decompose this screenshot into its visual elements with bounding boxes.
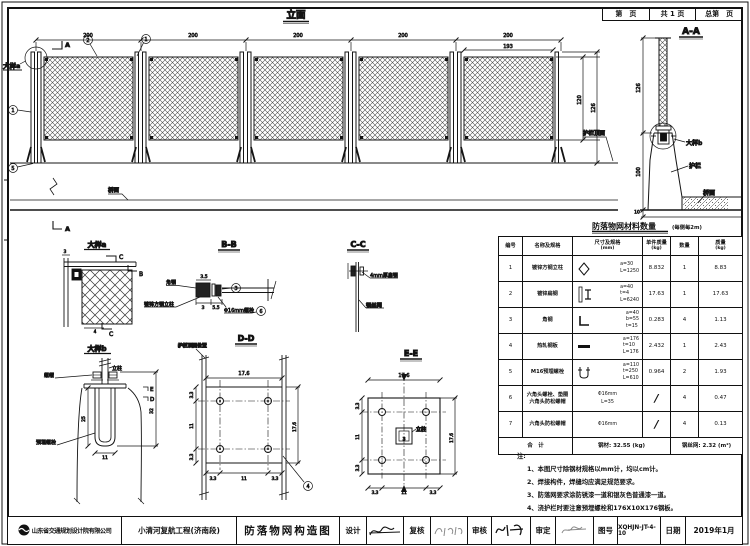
svg-text:螺帽: 螺帽: [44, 372, 54, 379]
svg-text:200: 200: [398, 33, 408, 39]
svg-text:126: 126: [591, 103, 597, 113]
note-item: 2、焊接构件，焊缝均应满足规范要求。: [527, 476, 744, 489]
page-number-cell: 第 页: [603, 8, 649, 20]
section-dd-view: D-D 护栏顶面位置 17.6 3.3 11 3.3: [178, 334, 313, 500]
table-row: 5 M16预埋螺栓 a=110t=250L=610 0.964 2 1.93: [499, 360, 743, 386]
svg-text:大样a: 大样a: [88, 240, 107, 249]
title-block: 山东省交通规划设计院有限公司 小清河复航工程(济南段) 防落物网构造图 设计 复…: [8, 516, 742, 544]
svg-text:100: 100: [636, 167, 642, 177]
note-item: 4、浇护栏时要注意预埋螺栓和176X10X176钢板。: [527, 502, 744, 515]
svg-text:3.3: 3.3: [372, 490, 379, 496]
section-ee-view: E-E 3 立柱 17.6 17.6 3.3: [355, 349, 458, 496]
elevation-right-dims: 120 126: [556, 50, 600, 166]
svg-text:11: 11: [401, 490, 407, 496]
rail-top-label: 护栏顶面: [583, 129, 613, 161]
svg-text:D: D: [150, 397, 154, 403]
col-unit-weight: 单件质量(kg): [643, 237, 671, 256]
callout-bubble-1b: 1: [9, 106, 32, 115]
svg-text:3.3: 3.3: [210, 476, 217, 482]
figure-number: XQHJN-JT-4-10: [618, 517, 661, 544]
size-sketch-icon: [576, 261, 592, 277]
page-header-strip: 第 页 共 1 页 总第 页: [602, 8, 742, 21]
deck-label: 桥面: [108, 186, 128, 200]
svg-text:17.6: 17.6: [449, 433, 455, 443]
detail-b-view: 大样b 25 11 32 E: [36, 344, 159, 504]
table-row: 2 镀锌扁钢 a=40t=4L=6240 17.63 1 17.63: [499, 282, 743, 308]
check-label: 复核: [404, 517, 431, 544]
svg-text:2: 2: [86, 38, 89, 44]
svg-text:防落物网材料数量: 防落物网材料数量: [592, 221, 656, 231]
svg-text:大样b: 大样b: [686, 139, 703, 147]
date-label: 日期: [661, 517, 686, 544]
section-bb-view: B-B 3.5 3 5.5 角钢 镀锌方钢立柱 Φ16mm螺栓 3 6: [144, 240, 276, 316]
svg-text:5.5: 5.5: [212, 305, 219, 311]
company-logo-icon: [18, 524, 30, 538]
svg-text:大样b: 大样b: [87, 344, 106, 353]
detail-a-ref-label: 大样a: [3, 61, 20, 70]
svg-text:11: 11: [189, 423, 195, 429]
material-table: 编号 名称及规格 尺寸及规格(mm) 单件质量(kg) 数量 质量(kg) 1 …: [498, 236, 743, 455]
svg-text:3.3: 3.3: [430, 490, 437, 496]
svg-text:桥面: 桥面: [703, 189, 715, 197]
svg-text:17.6: 17.6: [292, 422, 298, 432]
svg-text:3.3: 3.3: [355, 402, 361, 409]
callout-bubble-6: 6: [257, 307, 266, 316]
svg-text:17.6: 17.6: [398, 373, 409, 379]
detail-a-view: 大样a 3 4 C C B: [62, 240, 143, 338]
callout-bubble-4: 4: [304, 482, 313, 491]
col-no: 编号: [499, 237, 523, 256]
table-row: 6 六角头螺栓、垫圈六角头防松螺帽 Φ16mmL=35 / 4 0.47: [499, 386, 743, 412]
svg-text:3: 3: [64, 249, 67, 255]
svg-text:200: 200: [503, 33, 513, 39]
svg-text:1: 1: [144, 37, 147, 43]
svg-text:10: 10: [634, 210, 640, 216]
svg-text:B: B: [139, 271, 143, 278]
drawing-title: 防落物网构造图: [237, 517, 340, 544]
svg-text:17.6: 17.6: [238, 371, 249, 377]
svg-text:立柱: 立柱: [416, 426, 426, 433]
section-cut-a-bottom: A: [53, 221, 70, 233]
bridge-deck-lines: [10, 163, 618, 210]
total-pages-cell: 共 1 页: [649, 8, 696, 20]
svg-text:A: A: [65, 41, 70, 49]
size-sketch-icon: [576, 286, 594, 304]
svg-text:桥面: 桥面: [108, 186, 120, 194]
approve-signature: [556, 517, 594, 544]
notes-title: 注:: [517, 450, 744, 463]
callout-bubble-5: 5: [9, 164, 34, 173]
elevation-view: 立面 200 200 200 200 200 193: [3, 9, 618, 233]
callout-bubble-1: 1: [137, 35, 151, 57]
svg-text:3: 3: [234, 286, 237, 292]
project-name: 小清河复航工程(济南段): [122, 517, 237, 544]
svg-text:6: 6: [259, 309, 262, 315]
svg-text:3: 3: [403, 437, 406, 443]
svg-text:3.3: 3.3: [189, 391, 195, 398]
svg-text:C-C: C-C: [350, 240, 365, 249]
svg-text:角钢: 角钢: [166, 279, 176, 286]
check-signature: [431, 517, 468, 544]
svg-text:5: 5: [11, 166, 14, 172]
svg-text:32: 32: [149, 408, 155, 414]
svg-text:(每侧每2m): (每侧每2m): [672, 223, 702, 231]
elevation-top-dim: 200 200 200 200 200: [34, 33, 564, 51]
material-table-title: 防落物网材料数量 (每侧每2m): [592, 221, 702, 234]
elevation-title: 立面: [286, 9, 306, 21]
fence-panels: [27, 52, 565, 163]
note-item: 3、防落网要求涂防锈漆一道和银灰色普通漆一道。: [527, 489, 744, 502]
section-cut-a-top: A: [52, 41, 70, 49]
svg-text:护栏顶面位置: 护栏顶面位置: [178, 342, 207, 349]
section-aa: A-A 126 100 10 大样b 护栏 桥面: [634, 27, 742, 220]
svg-text:4: 4: [94, 329, 97, 335]
review-signature: [492, 517, 531, 544]
svg-text:200: 200: [293, 33, 303, 39]
review-label: 审核: [468, 517, 492, 544]
section-cc-view: C-C 4mm厚扁钢 钢丝网: [347, 240, 398, 332]
figure-number-label: 图号: [594, 517, 618, 544]
svg-text:3.5: 3.5: [200, 274, 207, 280]
svg-text:护栏: 护栏: [689, 162, 701, 170]
svg-text:A-A: A-A: [682, 27, 700, 37]
svg-text:193: 193: [503, 44, 513, 50]
svg-text:预埋螺栓: 预埋螺栓: [36, 439, 56, 446]
overall-page-cell: 总第 页: [695, 8, 742, 20]
svg-text:A: A: [65, 225, 70, 233]
svg-text:4: 4: [306, 484, 309, 490]
svg-text:3: 3: [202, 305, 205, 311]
design-signature: [367, 517, 404, 544]
col-size: 尺寸及规格(mm): [573, 237, 643, 256]
svg-text:立柱: 立柱: [112, 365, 122, 372]
svg-text:11: 11: [241, 476, 247, 482]
svg-text:E-E: E-E: [404, 349, 418, 358]
table-row: 7 六角头防松螺帽 Φ16mm / 4 0.13: [499, 412, 743, 438]
date-value: 2019年1月: [686, 517, 742, 544]
svg-text:B-B: B-B: [221, 240, 237, 249]
size-sketch-icon: [576, 339, 592, 355]
approve-label: 审定: [531, 517, 556, 544]
svg-text:3.3: 3.3: [272, 476, 279, 482]
svg-text:D-D: D-D: [238, 334, 255, 343]
svg-text:120: 120: [577, 95, 583, 105]
svg-text:25: 25: [81, 416, 87, 422]
svg-text:E: E: [150, 387, 154, 393]
svg-text:1: 1: [11, 108, 14, 114]
col-name: 名称及规格: [523, 237, 573, 256]
notes-block: 注: 1、本图尺寸除钢材规格以mm计，均以cm计。 2、焊接构件，焊缝均应满足规…: [498, 450, 744, 515]
col-qty: 数量: [671, 237, 699, 256]
note-item: 1、本图尺寸除钢材规格以mm计，均以cm计。: [527, 463, 744, 476]
company-cell: 山东省交通规划设计院有限公司: [8, 517, 122, 544]
svg-text:126: 126: [636, 83, 642, 93]
size-sketch-icon: [576, 365, 592, 381]
company-name: 山东省交通规划设计院有限公司: [32, 526, 112, 535]
table-row: 3 角钢 a=40b=55t=15 0.283 4 1.13: [499, 308, 743, 334]
svg-text:11: 11: [355, 434, 361, 440]
svg-text:护栏顶面: 护栏顶面: [583, 129, 606, 137]
drawing-sheet: 立面 200 200 200 200 200 193: [0, 0, 750, 546]
svg-text:3.3: 3.3: [355, 464, 361, 471]
svg-text:11: 11: [102, 455, 108, 461]
elevation-inner-dim: 193: [462, 44, 556, 53]
design-label: 设计: [340, 517, 367, 544]
size-sketch-icon: [576, 313, 592, 329]
svg-text:200: 200: [188, 33, 198, 39]
table-header-row: 编号 名称及规格 尺寸及规格(mm) 单件质量(kg) 数量 质量(kg): [499, 237, 743, 256]
svg-text:C: C: [109, 331, 113, 338]
table-row: 4 热轧钢板 a=176t=10L=176 2.432 1 2.43: [499, 334, 743, 360]
svg-text:3.3: 3.3: [189, 453, 195, 460]
col-weight: 质量(kg): [699, 237, 743, 256]
svg-text:C: C: [119, 254, 123, 261]
table-row: 1 镀锌方钢立柱 a=30L=1250 8.832 1 8.83: [499, 256, 743, 282]
